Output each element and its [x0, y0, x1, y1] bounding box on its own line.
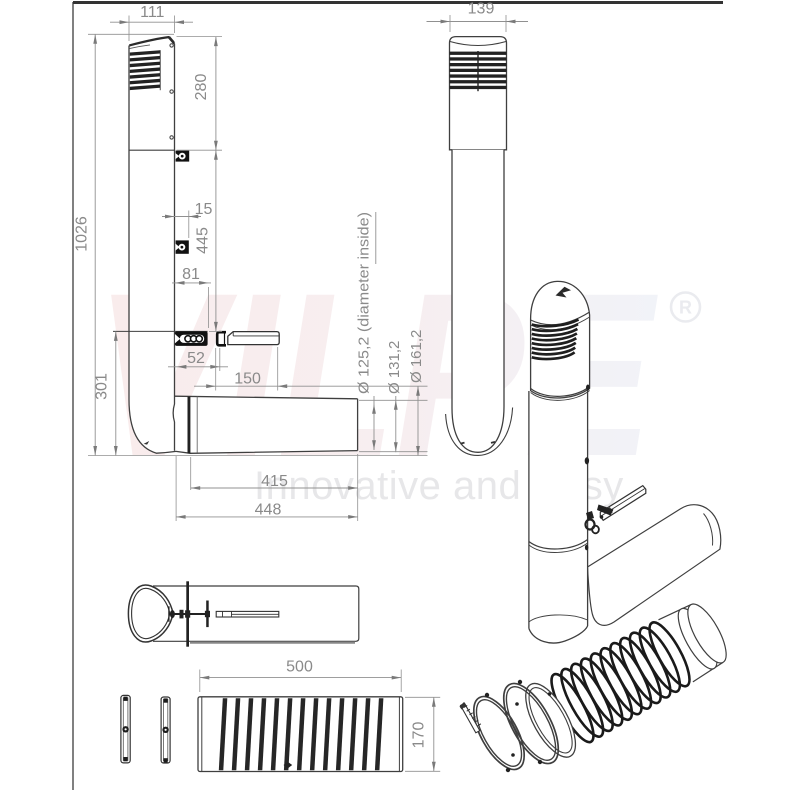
svg-text:15: 15: [195, 201, 213, 218]
svg-text:Ø 125,2 (diameter inside): Ø 125,2 (diameter inside): [356, 212, 373, 394]
svg-text:415: 415: [261, 473, 288, 490]
svg-text:1026: 1026: [74, 216, 91, 252]
svg-text:81: 81: [182, 266, 200, 283]
svg-text:500: 500: [286, 659, 313, 676]
svg-text:170: 170: [411, 722, 428, 749]
svg-text:Ø 131,2: Ø 131,2: [386, 341, 403, 394]
svg-text:52: 52: [187, 350, 205, 367]
svg-text:280: 280: [193, 74, 210, 101]
svg-text:111: 111: [140, 4, 164, 21]
svg-text:445: 445: [195, 227, 212, 254]
svg-text:Ø 161,2: Ø 161,2: [408, 330, 425, 383]
svg-text:R: R: [679, 298, 692, 318]
svg-text:301: 301: [94, 373, 111, 400]
svg-text:150: 150: [234, 371, 261, 388]
svg-text:448: 448: [255, 502, 282, 519]
svg-text:139: 139: [468, 1, 495, 18]
